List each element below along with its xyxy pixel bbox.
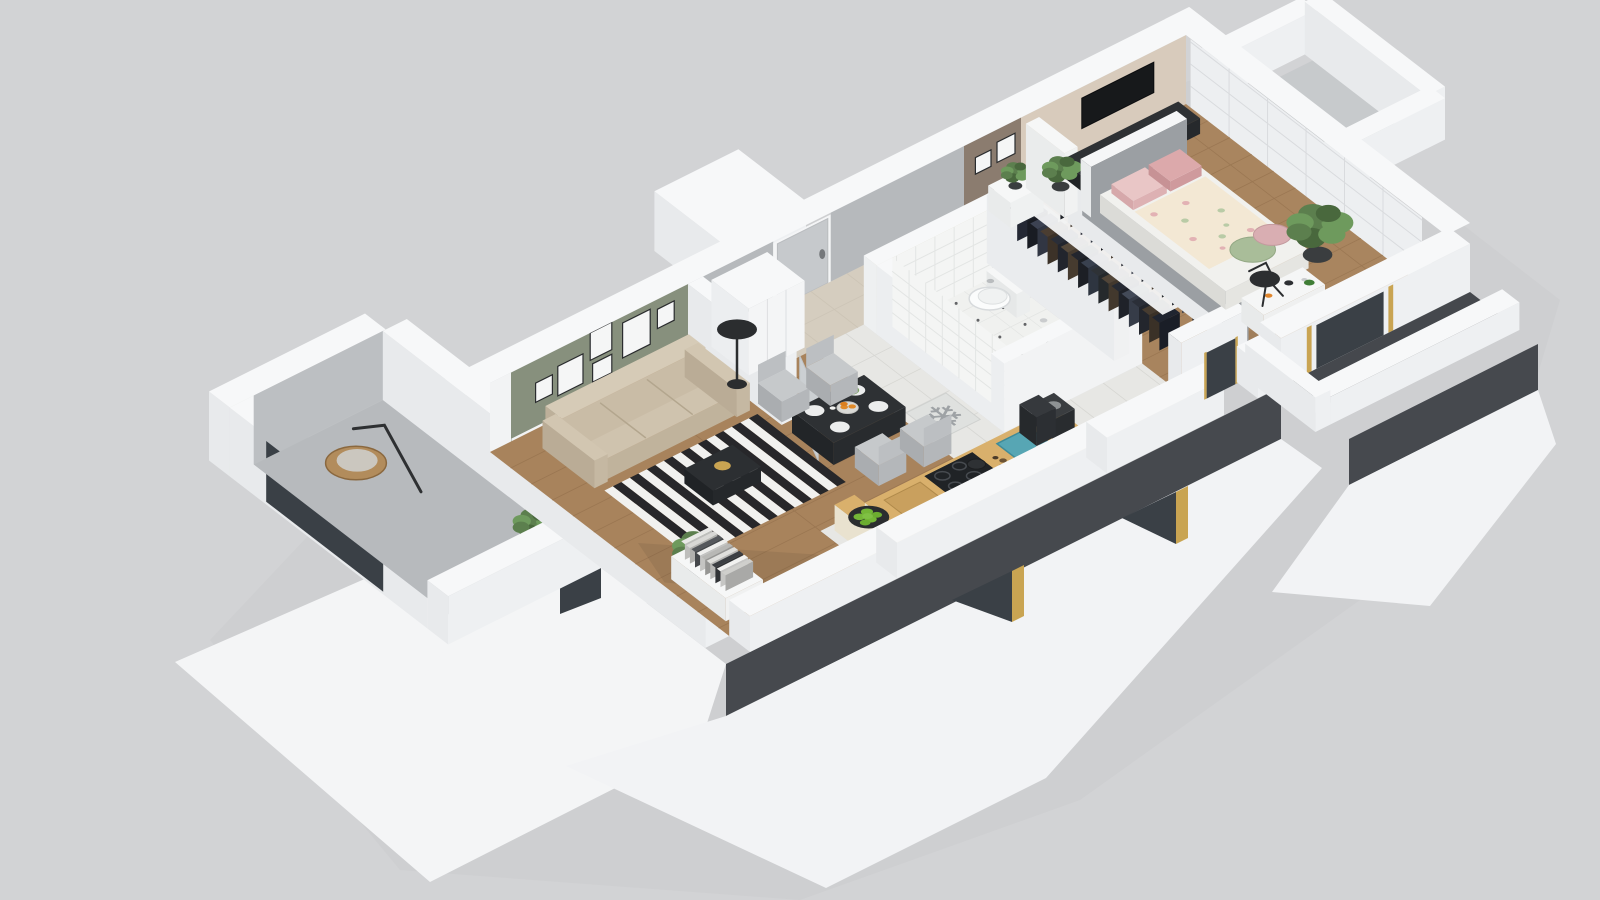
wall-face-white <box>490 373 511 453</box>
hanging-chair-cushion <box>337 449 378 472</box>
toy-dinosaur <box>1304 280 1315 286</box>
cushion-pink <box>1253 224 1291 245</box>
door-gold-frame <box>1388 284 1393 332</box>
floor-lamp-shade <box>717 319 757 339</box>
door-handle <box>819 249 825 259</box>
door-gold-frame <box>1307 325 1312 373</box>
floorplan-3d-render: ❄ <box>0 0 1600 900</box>
apartment-isometric-scene: ❄ <box>0 0 1600 900</box>
window-gold-frame <box>1012 565 1024 622</box>
window-gold-frame <box>1176 486 1188 544</box>
door-gold-frame <box>1204 352 1206 400</box>
candle <box>830 406 836 409</box>
cooking-pot <box>967 459 985 469</box>
decor-bowl <box>714 461 731 470</box>
desk-chair-seat <box>1250 271 1280 288</box>
toilet-seat <box>978 288 1007 304</box>
floor-lamp-base <box>727 379 747 389</box>
